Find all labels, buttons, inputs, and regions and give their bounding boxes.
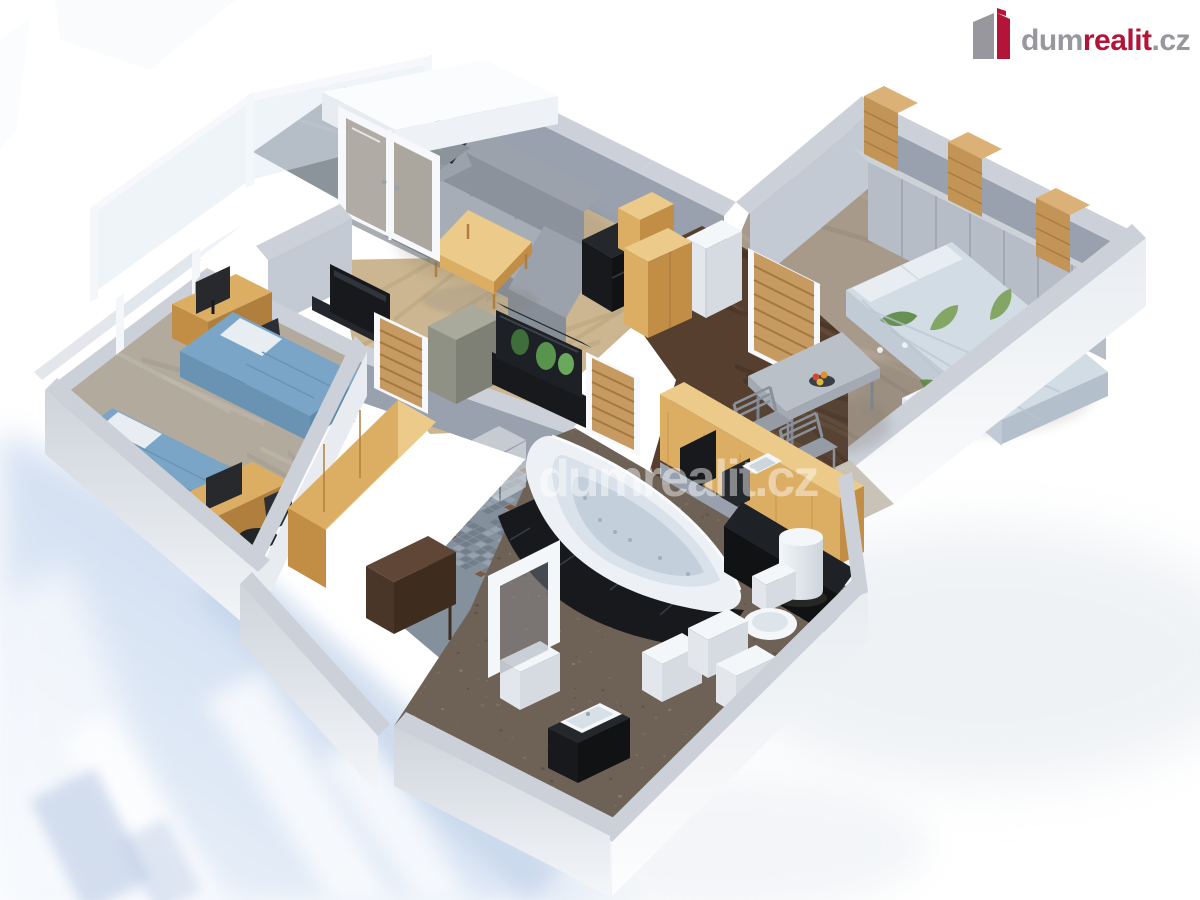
watermark-text: dumrealit.cz	[538, 450, 818, 508]
fridge	[686, 220, 742, 318]
dumrealit-building-icon	[472, 426, 526, 501]
logo-text: dumrealit.cz	[1021, 24, 1190, 57]
floorplan-render: dumrealit.cz dumrealit.cz	[0, 0, 1200, 900]
floorplan-screenshot: dumrealit.cz dumrealit.cz	[0, 0, 1200, 900]
dumrealit-building-icon	[973, 8, 1010, 59]
dumrealit-logo: dumrealit.cz	[973, 8, 1190, 59]
